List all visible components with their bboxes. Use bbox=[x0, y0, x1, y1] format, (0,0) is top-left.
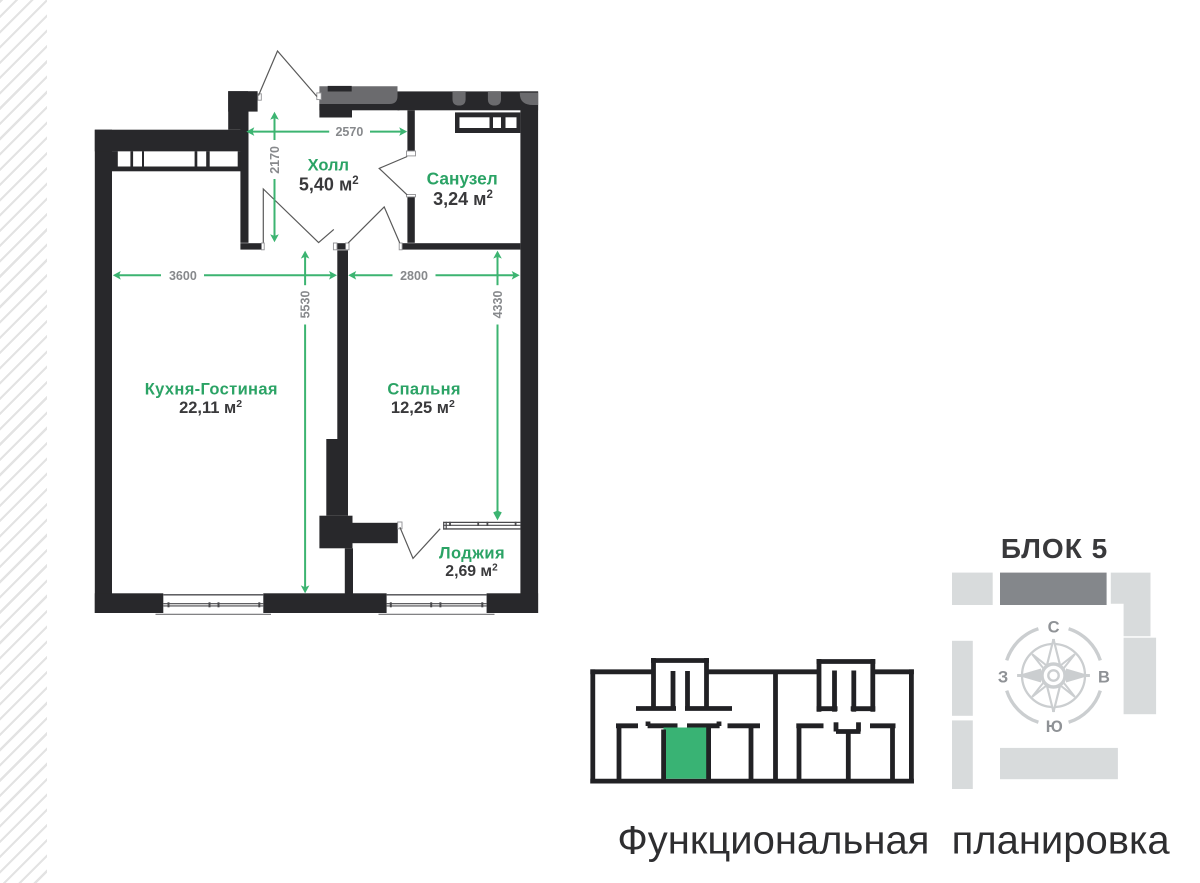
svg-text:3,24 м2: 3,24 м2 bbox=[433, 189, 493, 209]
svg-text:С: С bbox=[1048, 618, 1060, 636]
svg-text:5,40 м2: 5,40 м2 bbox=[299, 175, 359, 195]
svg-text:2570: 2570 bbox=[335, 125, 363, 139]
svg-text:5530: 5530 bbox=[299, 291, 313, 319]
svg-text:БЛОК 5: БЛОК 5 bbox=[1001, 533, 1108, 564]
svg-text:Санузел: Санузел bbox=[427, 169, 498, 189]
svg-text:Функциональная планировка: Функциональная планировка bbox=[617, 819, 1170, 863]
svg-text:В: В bbox=[1098, 668, 1110, 686]
svg-text:Холл: Холл bbox=[308, 156, 349, 174]
svg-text:Кухня-Гостиная: Кухня-Гостиная bbox=[145, 380, 278, 398]
svg-text:2800: 2800 bbox=[400, 269, 428, 283]
svg-text:Спальня: Спальня bbox=[387, 380, 460, 398]
svg-text:4330: 4330 bbox=[491, 291, 505, 319]
svg-text:3600: 3600 bbox=[169, 269, 197, 283]
svg-text:12,25 м2: 12,25 м2 bbox=[391, 398, 455, 417]
svg-text:2,69 м2: 2,69 м2 bbox=[445, 562, 498, 580]
svg-text:Ю: Ю bbox=[1046, 718, 1063, 736]
svg-text:2170: 2170 bbox=[268, 146, 282, 174]
svg-text:22,11 м2: 22,11 м2 bbox=[179, 398, 242, 417]
svg-text:Лоджия: Лоджия bbox=[439, 545, 505, 563]
svg-text:З: З bbox=[998, 668, 1008, 686]
